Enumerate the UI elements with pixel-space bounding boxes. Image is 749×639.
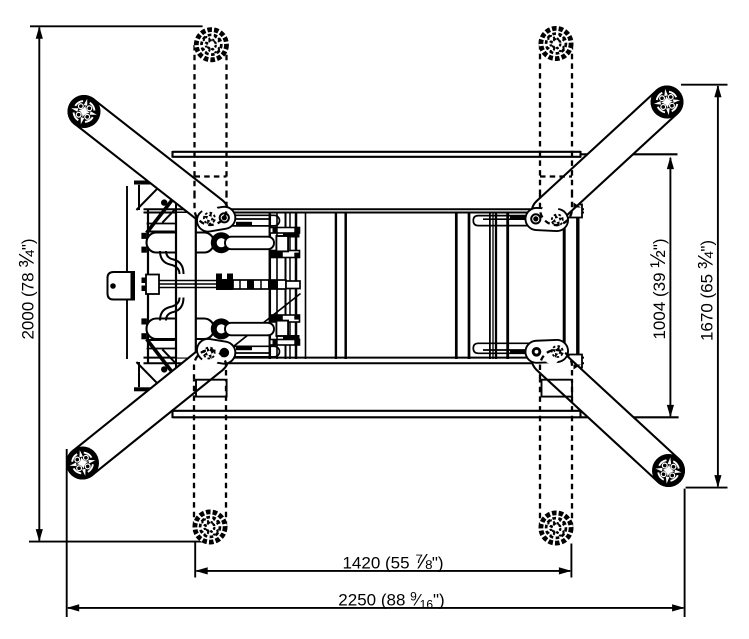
svg-text:2000 (78 ¾"): 2000 (78 ¾")	[16, 238, 39, 339]
svg-text:1004 (39 ½"): 1004 (39 ½")	[647, 238, 670, 339]
svg-text:1420 (55 ⅞"): 1420 (55 ⅞")	[342, 550, 443, 573]
svg-text:1670 (65 ¾"): 1670 (65 ¾")	[695, 240, 718, 341]
